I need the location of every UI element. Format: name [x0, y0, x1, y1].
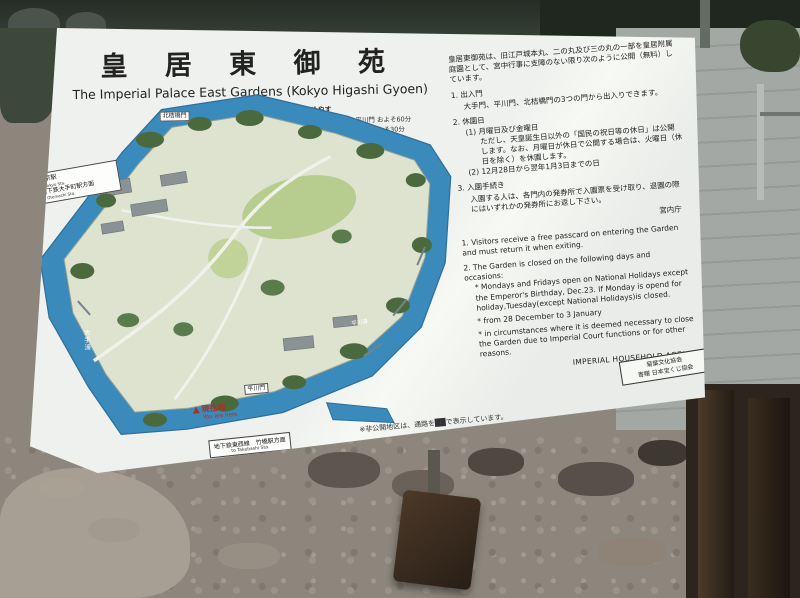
background-trees-left: [0, 28, 58, 123]
bush: [740, 20, 800, 72]
sign-support-box: [393, 490, 482, 591]
rock: [468, 448, 524, 476]
rock: [308, 452, 380, 488]
photo-scene: 皇 居 東 御 苑 The Imperial Palace East Garde…: [0, 0, 800, 598]
left-arrow-icon: ◀: [27, 186, 35, 197]
wooden-post: [698, 390, 734, 598]
railing-bar: [760, 112, 800, 116]
otebori-moat-label: 大手濠: [81, 329, 91, 352]
hirakawa-gate-label: 平川門: [244, 383, 269, 395]
railing-post: [757, 84, 764, 200]
rock: [638, 440, 688, 466]
rock: [558, 462, 634, 496]
lamp-pole: [700, 0, 710, 48]
title-japanese: 皇 居 東 御 苑: [54, 39, 445, 85]
stone: [598, 538, 666, 566]
stone: [218, 543, 280, 569]
kitahanebashi-gate-label: 北桔橋門: [160, 111, 190, 121]
en-item-closed-days: 2. The Garden is closed on the following…: [463, 247, 698, 361]
jp-item-closed-days: 2. 休園日 (1) 月曜日及び金曜日 ただし、天皇誕生日以外の「国民の祝日等の…: [452, 101, 684, 179]
information-signboard: 皇 居 東 御 苑 The Imperial Palace East Garde…: [30, 28, 705, 473]
moat-pond: [327, 402, 394, 424]
sign-text-column: 皇居東御苑は、旧江戸城本丸、二の丸及び三の丸の一部を皇居附属庭園として、宮中行事…: [448, 38, 699, 375]
stone: [88, 518, 140, 542]
wooden-post: [748, 398, 790, 598]
you-are-here-triangle-icon: ▲: [192, 405, 200, 416]
signboard-content: 皇 居 東 御 苑 The Imperial Palace East Garde…: [26, 22, 709, 479]
stone: [38, 478, 84, 498]
